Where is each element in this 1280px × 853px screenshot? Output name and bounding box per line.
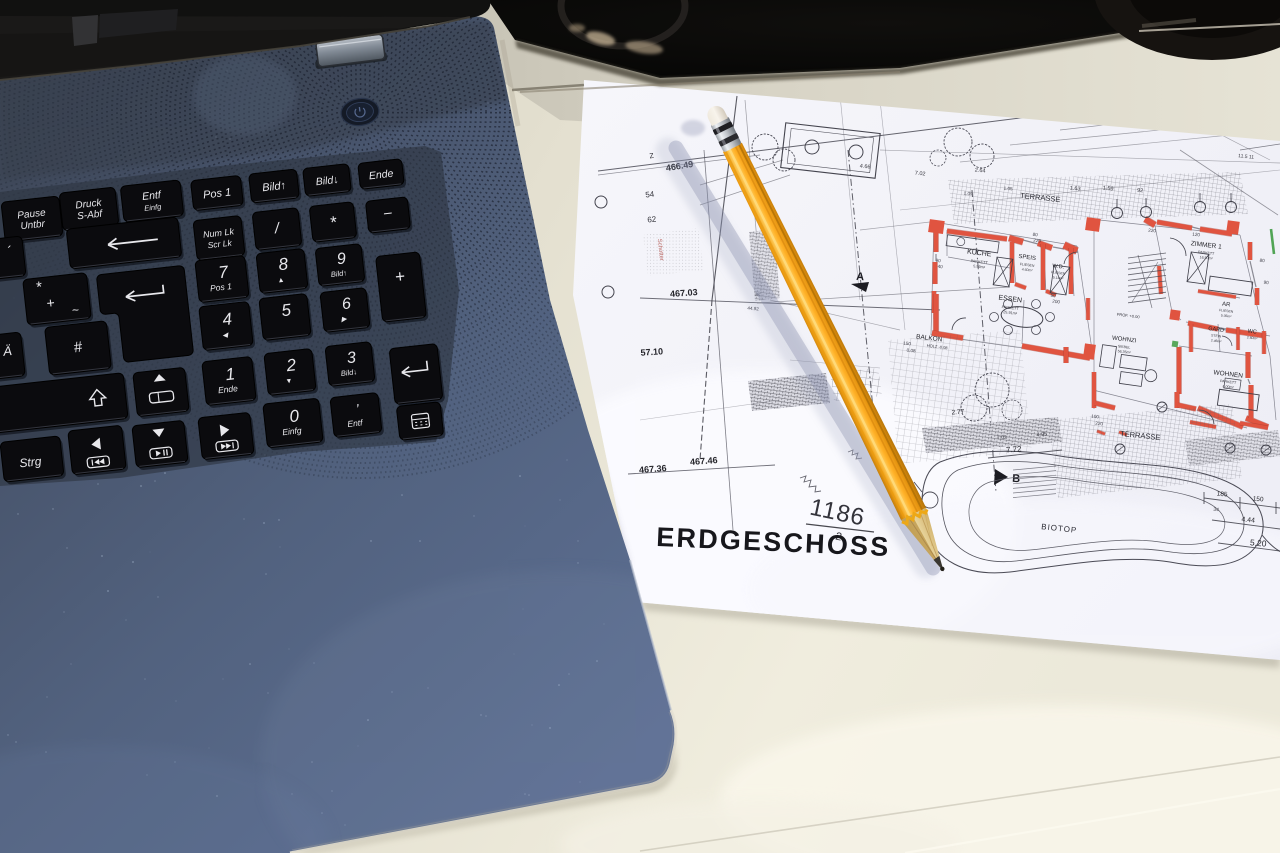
svg-text:90: 90 [1263, 280, 1269, 285]
svg-text:54: 54 [645, 190, 655, 200]
svg-text:A: A [856, 271, 865, 284]
svg-text:185: 185 [1216, 491, 1228, 499]
svg-text:5.20: 5.20 [1250, 537, 1268, 548]
svg-text:80: 80 [1259, 258, 1265, 263]
svg-text:1.09: 1.09 [963, 191, 973, 197]
svg-text:100: 100 [1091, 414, 1100, 420]
svg-text:AR: AR [1222, 302, 1232, 309]
svg-text:Entf: Entf [142, 189, 163, 203]
svg-text:Strg: Strg [19, 454, 43, 470]
svg-text:▼: ▼ [285, 378, 293, 386]
svg-text:62: 62 [647, 215, 657, 225]
svg-text:467.36: 467.36 [639, 463, 667, 475]
svg-text:220: 220 [1148, 228, 1157, 234]
svg-text:+: + [45, 294, 55, 311]
svg-text:4.44: 4.44 [1241, 516, 1255, 524]
svg-text:467.03: 467.03 [670, 287, 698, 299]
svg-text:7.72: 7.72 [1006, 444, 1023, 454]
svg-text:Entf: Entf [347, 417, 365, 429]
svg-text:1.59: 1.59 [1102, 185, 1113, 192]
svg-text:▲: ▲ [277, 277, 285, 285]
svg-text:92: 92 [1137, 188, 1144, 195]
svg-text:7.02: 7.02 [997, 435, 1007, 442]
svg-text:2.77: 2.77 [951, 408, 965, 416]
svg-text:34: 34 [1213, 507, 1219, 513]
svg-text:7.02: 7.02 [914, 170, 925, 177]
svg-text:2.64: 2.64 [974, 167, 985, 174]
svg-text:WC: WC [1247, 328, 1257, 335]
svg-text:4.95: 4.95 [1036, 432, 1047, 439]
svg-text:Ä: Ä [1, 343, 13, 359]
svg-text:150: 150 [1252, 496, 1264, 504]
svg-text:1.05: 1.05 [1003, 186, 1013, 192]
svg-text:Bild↓: Bild↓ [315, 174, 339, 188]
svg-text:4.66: 4.66 [859, 163, 870, 170]
svg-text:220: 220 [1095, 421, 1104, 427]
svg-text:57.10: 57.10 [640, 346, 663, 358]
svg-text:0.08: 0.08 [906, 348, 916, 354]
svg-text:220: 220 [1033, 238, 1042, 244]
svg-text:Bild↑: Bild↑ [330, 268, 347, 279]
svg-text:Bild↓: Bild↓ [340, 367, 357, 378]
svg-text:467.46: 467.46 [690, 455, 718, 467]
svg-text:200: 200 [1052, 299, 1061, 305]
svg-text:150: 150 [903, 341, 912, 347]
svg-text:120: 120 [1192, 232, 1201, 238]
